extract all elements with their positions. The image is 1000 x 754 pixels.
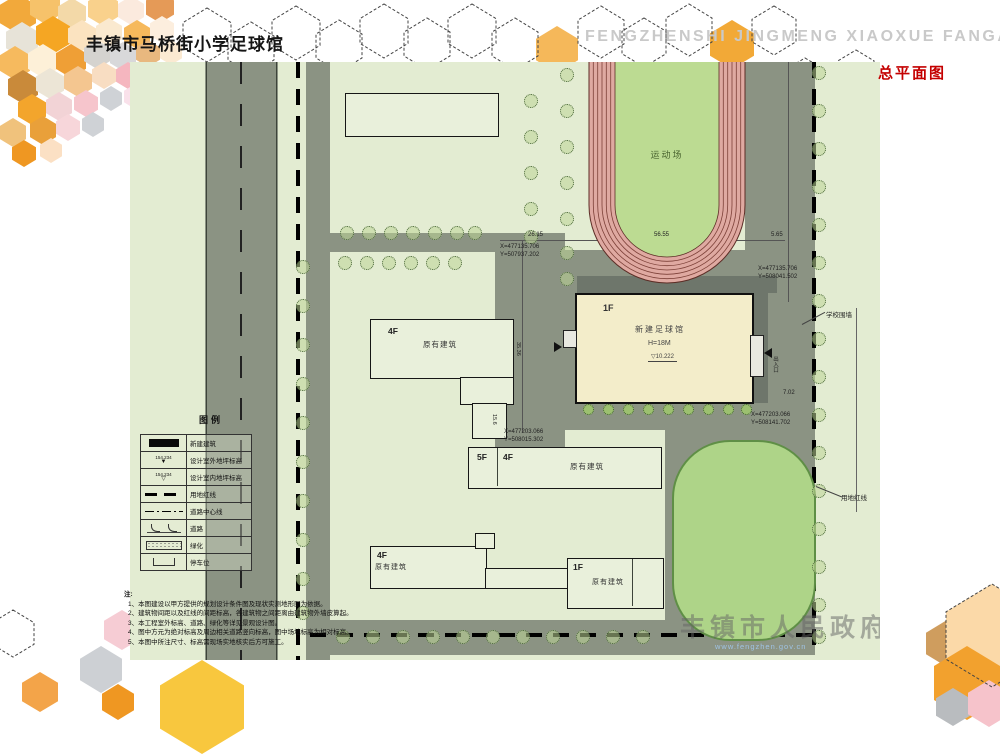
red-line-label: 用地红线 bbox=[841, 492, 867, 502]
tree-icon bbox=[450, 226, 464, 240]
track-label: 运动场 bbox=[637, 148, 697, 161]
hall-west-platform bbox=[563, 330, 577, 348]
dimension-label: 35.36 bbox=[515, 342, 521, 356]
tree-icon bbox=[812, 256, 826, 270]
bush-icon bbox=[603, 404, 614, 415]
hall-elevation-value: 10.222 bbox=[656, 354, 674, 360]
tree-icon bbox=[296, 260, 310, 274]
existing-building-west-annex bbox=[472, 403, 507, 439]
hall-elevation-label: ▽10.222 bbox=[648, 353, 677, 362]
tree-icon bbox=[812, 560, 826, 574]
greening-symbol-icon bbox=[141, 537, 187, 553]
bush-icon bbox=[583, 404, 594, 415]
legend-label: 道路 bbox=[187, 523, 251, 533]
tree-icon bbox=[362, 226, 376, 240]
coordinate-label: X=477135.706 bbox=[500, 244, 539, 250]
tree-icon bbox=[636, 630, 650, 644]
note-item: 3、本工程室外标高、道路、绿化等详见景观设计图。 bbox=[124, 619, 376, 629]
dimension-line bbox=[522, 240, 523, 432]
legend-label: 绿化 bbox=[187, 540, 251, 550]
tree-icon bbox=[340, 226, 354, 240]
tree-icon bbox=[576, 630, 590, 644]
new-building-symbol-icon bbox=[141, 435, 187, 451]
legend-label: 设计室外地坪标高 bbox=[187, 455, 251, 465]
building-floors-label: 5F bbox=[477, 452, 487, 462]
hex-outline-decor-icon bbox=[946, 584, 1000, 687]
bush-icon bbox=[663, 404, 674, 415]
hex-decor-icon bbox=[100, 86, 122, 111]
road-edge-line bbox=[276, 62, 277, 660]
coordinate-label: Y=508141.702 bbox=[751, 420, 790, 426]
entrance-arrow-icon bbox=[554, 342, 562, 352]
building-divider bbox=[632, 559, 633, 606]
tree-icon bbox=[396, 630, 410, 644]
hall-name-label: 新建足球馆 bbox=[635, 324, 685, 335]
centerline-symbol-icon bbox=[141, 503, 187, 519]
tree-icon bbox=[812, 522, 826, 536]
hall-floors-label: 1F bbox=[603, 303, 614, 313]
watermark-text: 丰镇市人民政府 bbox=[680, 608, 880, 644]
building-divider bbox=[497, 448, 498, 486]
tree-icon bbox=[812, 408, 826, 422]
tree-icon bbox=[524, 166, 538, 180]
dimension-label: 15.6 bbox=[491, 414, 497, 425]
coordinate-label: Y=508015.302 bbox=[504, 437, 543, 443]
new-football-hall bbox=[575, 293, 754, 404]
legend-label: 停车位 bbox=[187, 557, 251, 567]
building-name-label: 原有建筑 bbox=[423, 339, 457, 350]
legend-row: 154.234 ▼ 设计室外地坪标高 bbox=[141, 452, 251, 469]
note-item: 1、本图建设以甲方提供的规划设计条件图及现状实测地形图为依据。 bbox=[124, 600, 376, 610]
bush-icon bbox=[683, 404, 694, 415]
tree-icon bbox=[560, 272, 574, 286]
legend-row: 154.234 ▽ 设计室内地坪标高 bbox=[141, 469, 251, 486]
legend-row: 道路中心线 bbox=[141, 503, 251, 520]
tree-icon bbox=[812, 66, 826, 80]
hex-outline-decor-icon bbox=[360, 4, 408, 58]
building-name-label: 原有建筑 bbox=[592, 577, 624, 587]
building-floors-label: 4F bbox=[377, 550, 387, 560]
legend-table: 新建建筑 154.234 ▼ 设计室外地坪标高 154.234 ▽ 设计室内地坪… bbox=[140, 434, 252, 571]
tree-icon bbox=[524, 94, 538, 108]
tree-icon bbox=[516, 630, 530, 644]
tree-icon bbox=[524, 202, 538, 216]
building-floors-label: 1F bbox=[573, 562, 583, 572]
tree-icon bbox=[426, 630, 440, 644]
tree-icon bbox=[428, 226, 442, 240]
page-title: 丰镇市马桥街小学足球馆 bbox=[86, 30, 284, 55]
tree-icon bbox=[606, 630, 620, 644]
red-line-symbol-icon bbox=[141, 486, 187, 502]
dimension-label: 56.55 bbox=[654, 232, 669, 238]
legend-title: 图例 bbox=[170, 413, 252, 426]
building-floors-label: 4F bbox=[503, 452, 513, 462]
tree-icon bbox=[560, 176, 574, 190]
coordinate-label: X=477203.066 bbox=[504, 429, 543, 435]
coordinate-label: Y=507937.202 bbox=[500, 252, 539, 258]
campus-side-path bbox=[306, 62, 330, 660]
outdoor-elevation-symbol-icon: 154.234 ▼ bbox=[141, 452, 187, 468]
tree-icon bbox=[296, 455, 310, 469]
tree-icon bbox=[296, 572, 310, 586]
existing-building-south-annex bbox=[475, 533, 495, 549]
running-track bbox=[555, 62, 815, 292]
tree-icon bbox=[560, 140, 574, 154]
tree-icon bbox=[812, 180, 826, 194]
bush-icon bbox=[623, 404, 634, 415]
tree-icon bbox=[560, 212, 574, 226]
coordinate-label: X=477203.066 bbox=[751, 412, 790, 418]
tree-icon bbox=[812, 294, 826, 308]
building-name-label: 原有建筑 bbox=[570, 461, 604, 472]
tree-icon bbox=[812, 446, 826, 460]
hex-outline-decor-icon bbox=[0, 610, 34, 657]
legend-label: 新建建筑 bbox=[187, 438, 251, 448]
hall-height-label: H=18M bbox=[648, 340, 671, 347]
tree-icon bbox=[560, 246, 574, 260]
tree-icon bbox=[382, 256, 396, 270]
dimension-label: 7.02 bbox=[783, 390, 795, 396]
coordinate-label: X=477135.706 bbox=[758, 266, 797, 272]
notes-title: 注: bbox=[124, 590, 376, 600]
tree-icon bbox=[468, 226, 482, 240]
tree-icon bbox=[560, 68, 574, 82]
tree-icon bbox=[560, 104, 574, 118]
hex-decor-icon bbox=[22, 672, 58, 712]
note-item: 5、本图中所注尺寸、标高需现场实地核实后方可施工。 bbox=[124, 638, 376, 648]
dimension-label: 5.65 bbox=[771, 232, 783, 238]
tree-icon bbox=[524, 130, 538, 144]
notes-block: 注: 1、本图建设以甲方提供的规划设计条件图及现状实测地形图为依据。 2、建筑物… bbox=[124, 590, 376, 647]
tree-icon bbox=[486, 630, 500, 644]
legend-label: 设计室内地坪标高 bbox=[187, 472, 251, 482]
bush-icon bbox=[723, 404, 734, 415]
parking-symbol-icon bbox=[141, 554, 187, 570]
existing-building-west-wing bbox=[460, 377, 514, 405]
tree-icon bbox=[406, 226, 420, 240]
tree-icon bbox=[404, 256, 418, 270]
road-symbol-icon bbox=[141, 520, 187, 536]
legend-row: 停车位 bbox=[141, 554, 251, 571]
tree-icon bbox=[296, 299, 310, 313]
hall-east-platform bbox=[750, 335, 764, 377]
hex-decor-icon bbox=[118, 0, 144, 25]
legend-label: 道路中心线 bbox=[187, 506, 251, 516]
tree-icon bbox=[812, 218, 826, 232]
legend: 图例 新建建筑 154.234 ▼ 设计室外地坪标高 154.234 ▽ 设计室… bbox=[140, 413, 252, 571]
tree-icon bbox=[384, 226, 398, 240]
fence-line bbox=[856, 308, 857, 512]
tree-icon bbox=[296, 494, 310, 508]
tree-icon bbox=[546, 630, 560, 644]
entrance-label: 出入口 bbox=[771, 356, 779, 373]
tree-icon bbox=[296, 533, 310, 547]
tree-icon bbox=[296, 416, 310, 430]
bush-icon bbox=[643, 404, 654, 415]
tree-icon bbox=[812, 370, 826, 384]
site-plan: 运动场 1F 新建足球馆 H=18M ▽10.222 4F 原有建筑 5F 4F… bbox=[130, 62, 880, 660]
hex-outline-decor-icon bbox=[448, 4, 496, 58]
building-floors-label: 4F bbox=[388, 326, 398, 336]
watermark-url: www.fengzhen.gov.cn bbox=[715, 642, 806, 651]
note-item: 4、图中方元为绝对标高及周边相关道路竖向标高，图中场地标高为相对标高。 bbox=[124, 628, 376, 638]
coordinate-label: Y=508041.502 bbox=[758, 274, 797, 280]
dimension-label: 26.15 bbox=[528, 232, 543, 238]
legend-label: 用地红线 bbox=[187, 489, 251, 499]
indoor-elevation-symbol-icon: 154.234 ▽ bbox=[141, 469, 187, 485]
tree-icon bbox=[812, 484, 826, 498]
drawing-label: 总平面图 bbox=[878, 62, 946, 83]
legend-row: 道路 bbox=[141, 520, 251, 537]
note-item: 2、建筑物间距以及红线的间距标高，各建筑物之间距离由建筑物外墙皮算起。 bbox=[124, 609, 376, 619]
boundary-wall-label: 学校围墙 bbox=[826, 309, 852, 319]
tree-icon bbox=[360, 256, 374, 270]
tree-icon bbox=[338, 256, 352, 270]
tree-icon bbox=[812, 142, 826, 156]
page-subtitle-en: FENGZHENSHI JINGMENG XIAOXUE FANGAN SHEJ… bbox=[585, 28, 1000, 46]
red-line-west bbox=[296, 62, 300, 660]
legend-row: 绿化 bbox=[141, 537, 251, 554]
tree-icon bbox=[296, 377, 310, 391]
legend-row: 用地红线 bbox=[141, 486, 251, 503]
building-name-label: 原有建筑 bbox=[375, 562, 407, 572]
tree-icon bbox=[296, 338, 310, 352]
existing-building-corridor bbox=[485, 568, 569, 589]
tree-icon bbox=[448, 256, 462, 270]
tree-icon bbox=[426, 256, 440, 270]
tree-icon bbox=[456, 630, 470, 644]
bush-icon bbox=[703, 404, 714, 415]
tree-icon bbox=[812, 332, 826, 346]
existing-building-north bbox=[345, 93, 499, 137]
legend-row: 新建建筑 bbox=[141, 435, 251, 452]
hex-decor-icon bbox=[160, 660, 244, 754]
tree-icon bbox=[812, 104, 826, 118]
